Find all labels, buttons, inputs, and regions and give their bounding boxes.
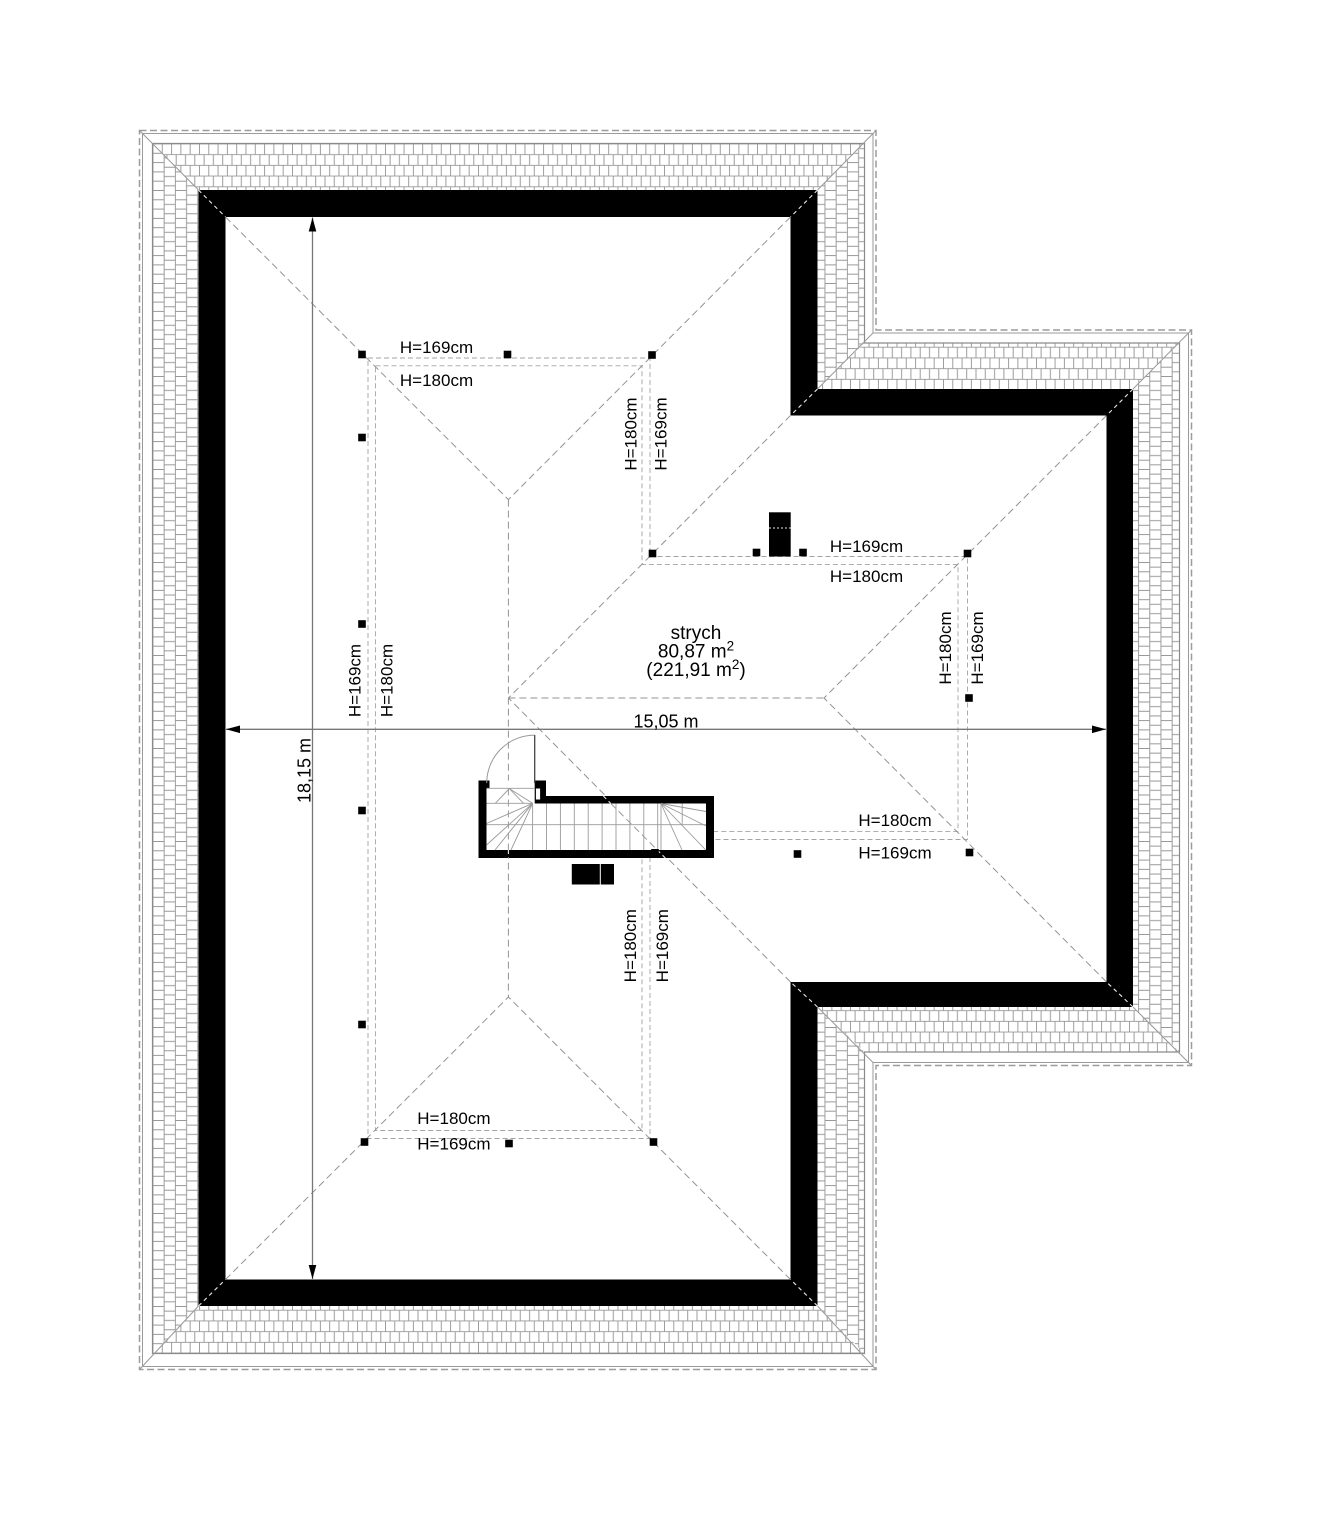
svg-text:H=169cm: H=169cm xyxy=(346,644,365,717)
svg-text:H=180cm: H=180cm xyxy=(417,1109,490,1128)
svg-text:H=169cm: H=169cm xyxy=(858,844,931,863)
svg-text:(221,91 m2): (221,91 m2) xyxy=(646,657,745,681)
svg-text:18,15 m: 18,15 m xyxy=(295,738,315,803)
svg-text:H=169cm: H=169cm xyxy=(400,338,473,357)
svg-text:H=180cm: H=180cm xyxy=(936,611,955,684)
svg-text:15,05 m: 15,05 m xyxy=(633,712,698,732)
svg-text:H=169cm: H=169cm xyxy=(830,537,903,556)
svg-text:H=169cm: H=169cm xyxy=(417,1135,490,1154)
svg-text:H=180cm: H=180cm xyxy=(377,644,396,717)
svg-text:H=169cm: H=169cm xyxy=(653,909,672,982)
svg-text:H=180cm: H=180cm xyxy=(621,909,640,982)
svg-text:H=180cm: H=180cm xyxy=(830,567,903,586)
svg-text:H=169cm: H=169cm xyxy=(652,397,671,470)
svg-text:H=180cm: H=180cm xyxy=(858,811,931,830)
svg-text:H=169cm: H=169cm xyxy=(968,611,987,684)
svg-text:80,87 m2: 80,87 m2 xyxy=(658,639,734,663)
svg-text:H=180cm: H=180cm xyxy=(622,397,641,470)
svg-text:H=180cm: H=180cm xyxy=(400,371,473,390)
